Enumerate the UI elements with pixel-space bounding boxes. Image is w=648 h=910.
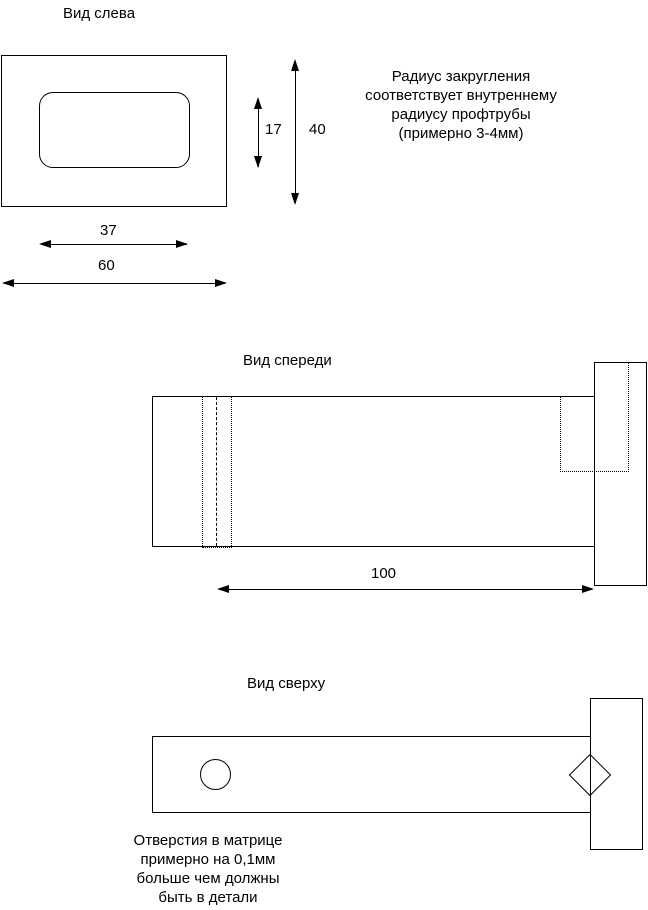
- radius-note-line-4: (примерно 3-4мм): [348, 124, 574, 143]
- front-view-body-rect: [152, 396, 595, 547]
- radius-note-line-3: радиусу профтрубы: [348, 105, 574, 124]
- dim-hole-height-arrow-down: [254, 156, 262, 168]
- dim-height-arrow-up: [291, 59, 299, 71]
- radius-note: Радиус закругления соответствует внутрен…: [348, 67, 574, 143]
- dim-height-label: 40: [309, 121, 326, 138]
- dim-hole-height-arrow-up: [254, 97, 262, 109]
- front-view-title: Вид спереди: [243, 352, 332, 369]
- front-view-hidden-socket-right: [628, 363, 629, 472]
- holes-note-line-2: примерно на 0,1мм: [104, 850, 312, 869]
- holes-note: Отверстия в матрице примерно на 0,1мм бо…: [104, 831, 312, 907]
- dim-hole-width-arrow-right: [176, 240, 188, 248]
- holes-note-line-1: Отверстия в матрице: [104, 831, 312, 850]
- dim-width-arrow-left: [2, 279, 14, 287]
- dim-hole-height-label: 17: [265, 121, 282, 138]
- dim-length-line: [219, 589, 592, 590]
- dim-height-arrow-down: [291, 193, 299, 205]
- dim-hole-width-label: 37: [100, 222, 117, 239]
- dim-width-line: [4, 283, 225, 284]
- top-view-title: Вид сверху: [247, 675, 325, 692]
- radius-note-line-2: соответствует внутреннему: [348, 86, 574, 105]
- front-view-hole-edge-dotted-bottom: [202, 547, 232, 548]
- dim-hole-width-arrow-left: [39, 240, 51, 248]
- left-view-hole-rounded-rect: [39, 92, 190, 168]
- dim-width-arrow-right: [215, 279, 227, 287]
- front-view-hidden-socket-bottom: [560, 471, 629, 472]
- dim-length-label: 100: [371, 565, 396, 582]
- front-view-hole-edge-dotted-right: [231, 397, 232, 546]
- dim-hole-width-line: [41, 244, 187, 245]
- left-view-title: Вид слева: [63, 5, 135, 22]
- front-view-hidden-socket-left: [560, 397, 561, 472]
- dim-height-line: [295, 62, 296, 203]
- dim-width-label: 60: [98, 257, 115, 274]
- front-view-hole-edge-dotted-left: [202, 397, 203, 546]
- front-view-centerline-dashed: [216, 397, 217, 546]
- radius-note-line-1: Радиус закругления: [348, 67, 574, 86]
- holes-note-line-4: быть в детали: [104, 888, 312, 907]
- holes-note-line-3: больше чем должны: [104, 869, 312, 888]
- dim-length-arrow-left: [217, 585, 229, 593]
- front-view-flange-rect: [594, 362, 647, 586]
- technical-drawing: Вид слева 17 40 37 60 Радиус закругления…: [0, 0, 648, 910]
- top-view-hole-circle: [200, 759, 231, 790]
- dim-length-arrow-right: [582, 585, 594, 593]
